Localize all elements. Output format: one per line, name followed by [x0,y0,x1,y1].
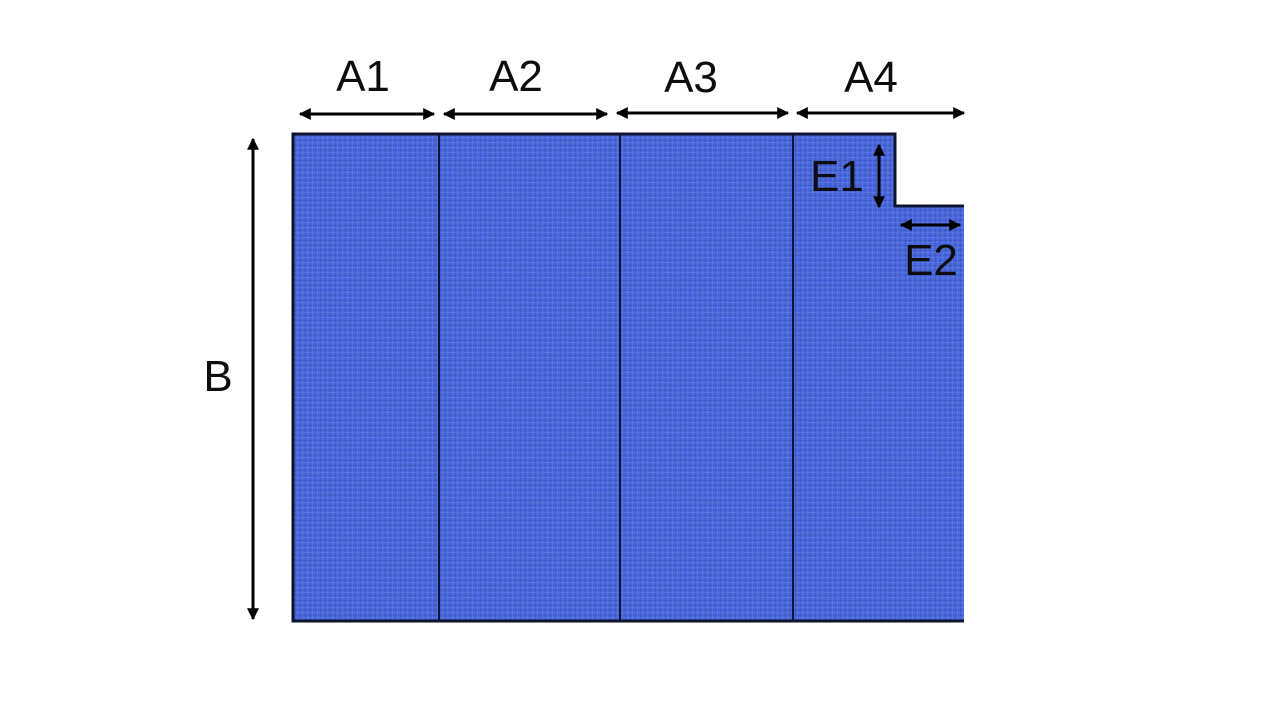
fabric-texture-overlay [293,134,964,621]
dimension-label-e1: E1 [810,155,864,199]
dimension-label-a3: A3 [664,56,718,100]
dimension-label-e2: E2 [904,239,958,283]
dimension-label-a1: A1 [336,55,390,99]
dimension-label-b: B [203,355,232,399]
dimension-label-a2: A2 [489,55,543,99]
dimension-label-a4: A4 [844,56,898,100]
panel-diagram-graphic [0,0,1280,720]
diagram-canvas: A1 A2 A3 A4 B E1 E2 [0,0,1280,720]
